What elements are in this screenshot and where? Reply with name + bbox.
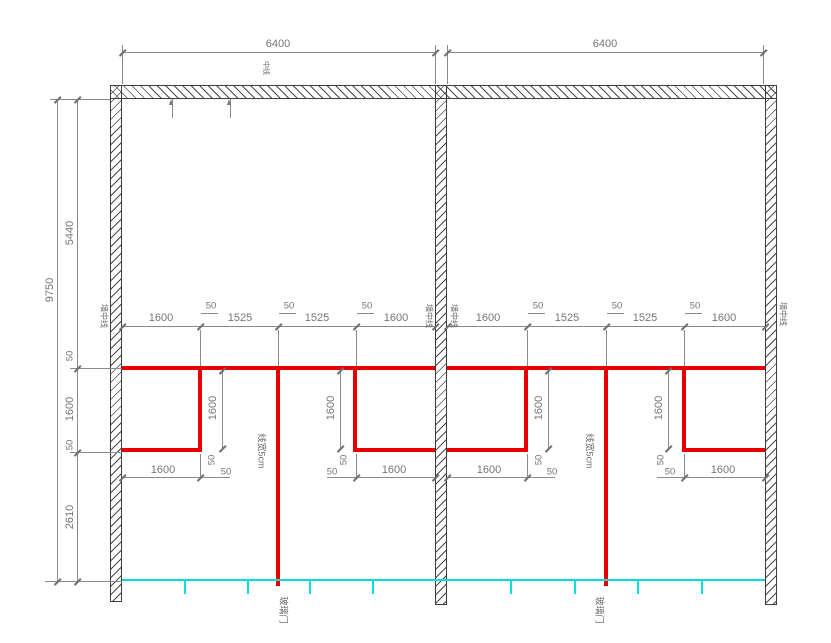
- dim-tick: [337, 445, 344, 452]
- glass-door-label: 玻璃门: [278, 596, 291, 623]
- dim-line-bottom: [122, 477, 230, 478]
- dim-chain-50: 50: [690, 301, 701, 312]
- dim-ext: [278, 330, 279, 366]
- dim-chain-1600: 1600: [712, 312, 736, 324]
- dim-bottom-1600: 1600: [477, 464, 501, 476]
- tape-line-vert: [198, 366, 202, 452]
- dim-chain-50: 50: [612, 301, 623, 312]
- dim-panel-depth: 1600: [325, 396, 337, 420]
- dim-chain-50: 50: [362, 301, 373, 312]
- glass-mullion-tick: [701, 580, 703, 594]
- wall-axis-label: 墙中线: [99, 304, 110, 328]
- dim-leader: [607, 313, 624, 314]
- wall-center: [435, 85, 447, 605]
- dim-chain-1525: 1525: [633, 312, 657, 324]
- dim-leader: [685, 313, 702, 314]
- tape-line-horiz: [682, 448, 765, 452]
- dim-chain-50: 50: [533, 301, 544, 312]
- dim-ext: [527, 454, 528, 477]
- dim-tape-50-v: 50: [656, 455, 667, 466]
- dim-ext: [684, 454, 685, 477]
- tape-line-vert: [524, 366, 528, 452]
- wall-left: [110, 85, 122, 602]
- dim-line-left-chain: [77, 99, 78, 581]
- dim-line-bottom: [327, 477, 435, 478]
- tape-line-door-axis: [276, 366, 280, 586]
- glass-door-label: 玻璃门: [594, 596, 607, 623]
- dim-tape-50-h: 50: [547, 467, 558, 478]
- glass-mullion-tick: [247, 580, 249, 594]
- dim-left-2610: 2610: [64, 505, 76, 529]
- dim-chain-1600: 1600: [149, 312, 173, 324]
- dim-bottom-1600: 1600: [711, 464, 735, 476]
- dim-tape-50-v: 50: [534, 455, 545, 466]
- tape-line-horiz: [122, 448, 202, 452]
- dim-ext: [200, 454, 201, 477]
- dim-leader: [201, 313, 218, 314]
- dim-line-panel-depth: [668, 370, 669, 449]
- wall-right: [765, 85, 777, 605]
- tape-line-door-axis: [604, 366, 608, 586]
- dim-tape-50-v: 50: [339, 455, 350, 466]
- dim-left-1600: 1600: [64, 397, 76, 421]
- dim-panel-depth: 1600: [207, 396, 219, 420]
- dim-chain-50: 50: [206, 301, 217, 312]
- dim-panel-depth: 1600: [653, 396, 665, 420]
- dim-total-height: 9750: [44, 278, 56, 302]
- glass-front-line: [122, 579, 765, 581]
- dim-chain-1525: 1525: [305, 312, 329, 324]
- cad-drawing: 6400 6400 中线 9750 5440 50 1600 50 2610 1…: [0, 0, 831, 643]
- dim-tape-50-h: 50: [327, 467, 338, 478]
- dim-bottom-1600: 1600: [382, 464, 406, 476]
- dim-tick: [219, 445, 226, 452]
- dim-tape-50-h: 50: [221, 467, 232, 478]
- dim-left-50a: 50: [65, 351, 76, 362]
- wall-axis-label: 墙中线: [424, 304, 435, 328]
- dim-tape-50-h: 50: [665, 467, 676, 478]
- glass-mullion-tick: [574, 580, 576, 594]
- dim-chain-50: 50: [284, 301, 295, 312]
- dim-left-50b: 50: [65, 440, 76, 451]
- dim-leader: [357, 313, 374, 314]
- dim-line-panel-depth: [548, 370, 549, 449]
- dim-tape-50-v: 50: [207, 455, 218, 466]
- tape-line-horiz: [447, 448, 528, 452]
- dim-chain-1600: 1600: [384, 312, 408, 324]
- leader-arrow-icon: [227, 99, 231, 105]
- dim-panel-depth: 1600: [533, 396, 545, 420]
- center-axis-label: 中线: [261, 61, 271, 75]
- tape-line-vert: [682, 366, 686, 452]
- dim-chain-1525: 1525: [555, 312, 579, 324]
- dim-tick: [545, 445, 552, 452]
- dim-line-top-bay2: [447, 52, 763, 53]
- dim-bay1-width: 6400: [266, 38, 290, 50]
- dim-ext: [527, 330, 528, 366]
- dim-bottom-1600: 1600: [151, 464, 175, 476]
- dim-line-panel-depth: [222, 370, 223, 449]
- dim-line-top-bay1: [122, 52, 435, 53]
- dim-chain-1600: 1600: [476, 312, 500, 324]
- dim-left-5440: 5440: [64, 221, 76, 245]
- wall-axis-label: 墙中线: [778, 302, 789, 326]
- glass-mullion-tick: [510, 580, 512, 594]
- dim-tick: [665, 445, 672, 452]
- dim-ext: [200, 330, 201, 366]
- leader-arrow-icon: [169, 99, 173, 105]
- tape-width-note: 线宽5cm: [256, 433, 269, 468]
- dim-ext: [606, 330, 607, 366]
- glass-mullion-tick: [372, 580, 374, 594]
- glass-mullion-tick: [184, 580, 186, 594]
- dim-line-total-height: [57, 99, 58, 581]
- dim-bay2-width: 6400: [593, 38, 617, 50]
- glass-mullion-tick: [309, 580, 311, 594]
- dim-ext: [684, 330, 685, 366]
- dim-chain-1525: 1525: [228, 312, 252, 324]
- tape-line-vert: [353, 366, 357, 452]
- tape-width-note: 线宽5cm: [584, 433, 597, 468]
- tape-line-horiz: [353, 448, 435, 452]
- dim-ext: [356, 330, 357, 366]
- dim-leader: [279, 313, 296, 314]
- glass-mullion-tick: [637, 580, 639, 594]
- dim-ext: [356, 454, 357, 477]
- dim-leader: [528, 313, 545, 314]
- dim-line-panel-depth: [340, 370, 341, 449]
- dim-line-bottom: [447, 477, 555, 478]
